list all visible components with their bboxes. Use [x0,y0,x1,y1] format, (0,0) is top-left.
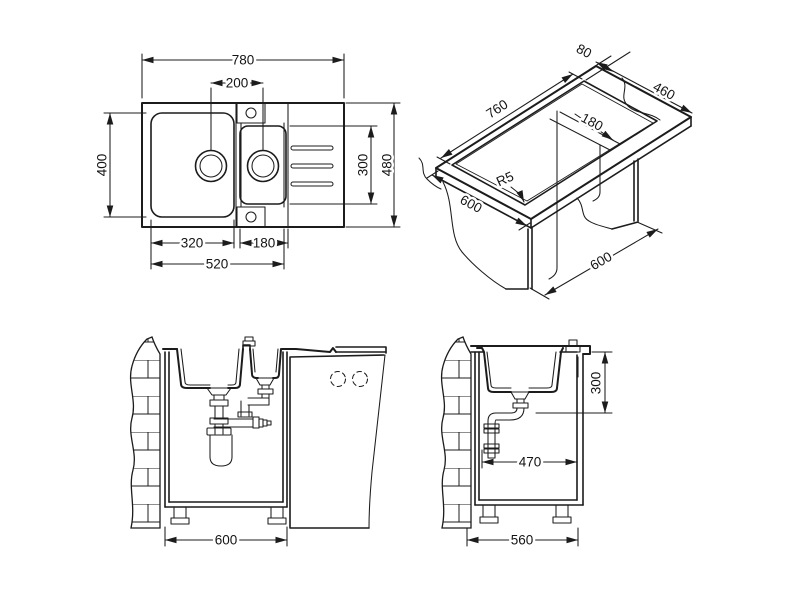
iso-dim-strip: 180 [575,110,613,140]
dim-label-600-cabinet: 600 [587,249,614,273]
dim-label-R5: R5 [494,169,516,190]
plan-dim-bowl-length: 400 [95,113,147,217]
iso-right-panel-break [577,198,612,229]
dim-label-600-worktop: 600 [458,192,485,216]
front-main-bowl [177,349,243,388]
plan-dim-right-section: 300 [290,126,377,204]
plan-tap-hole-bottom [246,212,256,222]
plan-sink-body [142,103,344,227]
drawing-svg: 780 200 400 300 480 320 [0,0,800,600]
front-sink-profile [163,337,336,388]
iso-inner-wall-left [549,111,557,279]
dim-label-600-front: 600 [215,533,238,548]
plan-tap-box-bottom [237,207,265,227]
dim-label-80: 80 [574,41,594,61]
front-dim-cabinet-width: 600 [165,527,287,548]
dim-label-520: 520 [206,257,229,272]
dim-label-300-side: 300 [589,372,604,395]
front-cabinet [165,352,287,507]
front-section-view: 600 [131,337,386,548]
iso-right-panel-edge [612,159,638,229]
dim-label-460: 460 [651,79,678,103]
plan-view: 780 200 400 300 480 320 [95,53,401,272]
plan-half-drain-inner [252,155,274,177]
side-feet [480,505,571,523]
front-right-cabinet-break [369,355,385,528]
front-right-cabinet [290,347,386,528]
plan-tap-hole-top [246,108,256,118]
front-knockout-right [353,372,368,387]
dim-label-200: 200 [226,76,249,91]
dim-label-180-iso: 180 [579,110,606,134]
front-feet [171,507,286,524]
iso-break-squiggle-left [419,158,441,189]
front-tap-stub-top [245,337,253,341]
dim-label-760: 760 [483,97,510,122]
plan-main-drain-inner [200,155,222,177]
dim-label-300-plan: 300 [356,154,371,177]
side-counter-and-bowl [471,340,590,392]
iso-inner-wall-right [593,145,600,201]
side-wall-bricks [442,337,471,528]
dim-label-560: 560 [511,533,534,548]
dim-label-780: 780 [232,53,255,68]
side-dim-cabinet-depth: 560 [467,528,578,548]
dim-label-480: 480 [380,154,395,177]
plan-drainboard-grooves [291,146,333,186]
front-wall-bricks [131,337,160,528]
technical-drawing-sink-dimensions: 780 200 400 300 480 320 [0,0,800,600]
side-plumbing [484,392,529,458]
dim-label-180-plan: 180 [253,236,276,251]
side-section-view: 300 470 560 [442,337,612,548]
plan-tap-box-top [237,103,265,123]
iso-left-panel-edge [506,227,532,289]
plan-dim-overall-depth: 480 [346,103,400,227]
dim-label-320: 320 [181,236,204,251]
side-bowl [477,348,563,392]
front-plumbing [207,378,274,466]
plan-dim-half-bowl: 180 [240,229,288,251]
iso-dim-cutout-length: 760 [437,72,582,164]
iso-cutout [452,81,657,205]
front-knockout-left [331,372,346,387]
plan-sink-outline [142,103,344,227]
dim-label-400: 400 [95,154,110,177]
dim-label-470: 470 [519,455,542,470]
plan-divider-band [236,103,288,227]
iso-dim-cabinet-width: 600 [530,222,662,299]
side-dim-drain-depth: 300 [536,352,612,413]
isometric-view: 760 80 460 180 R5 600 600 [419,41,692,299]
